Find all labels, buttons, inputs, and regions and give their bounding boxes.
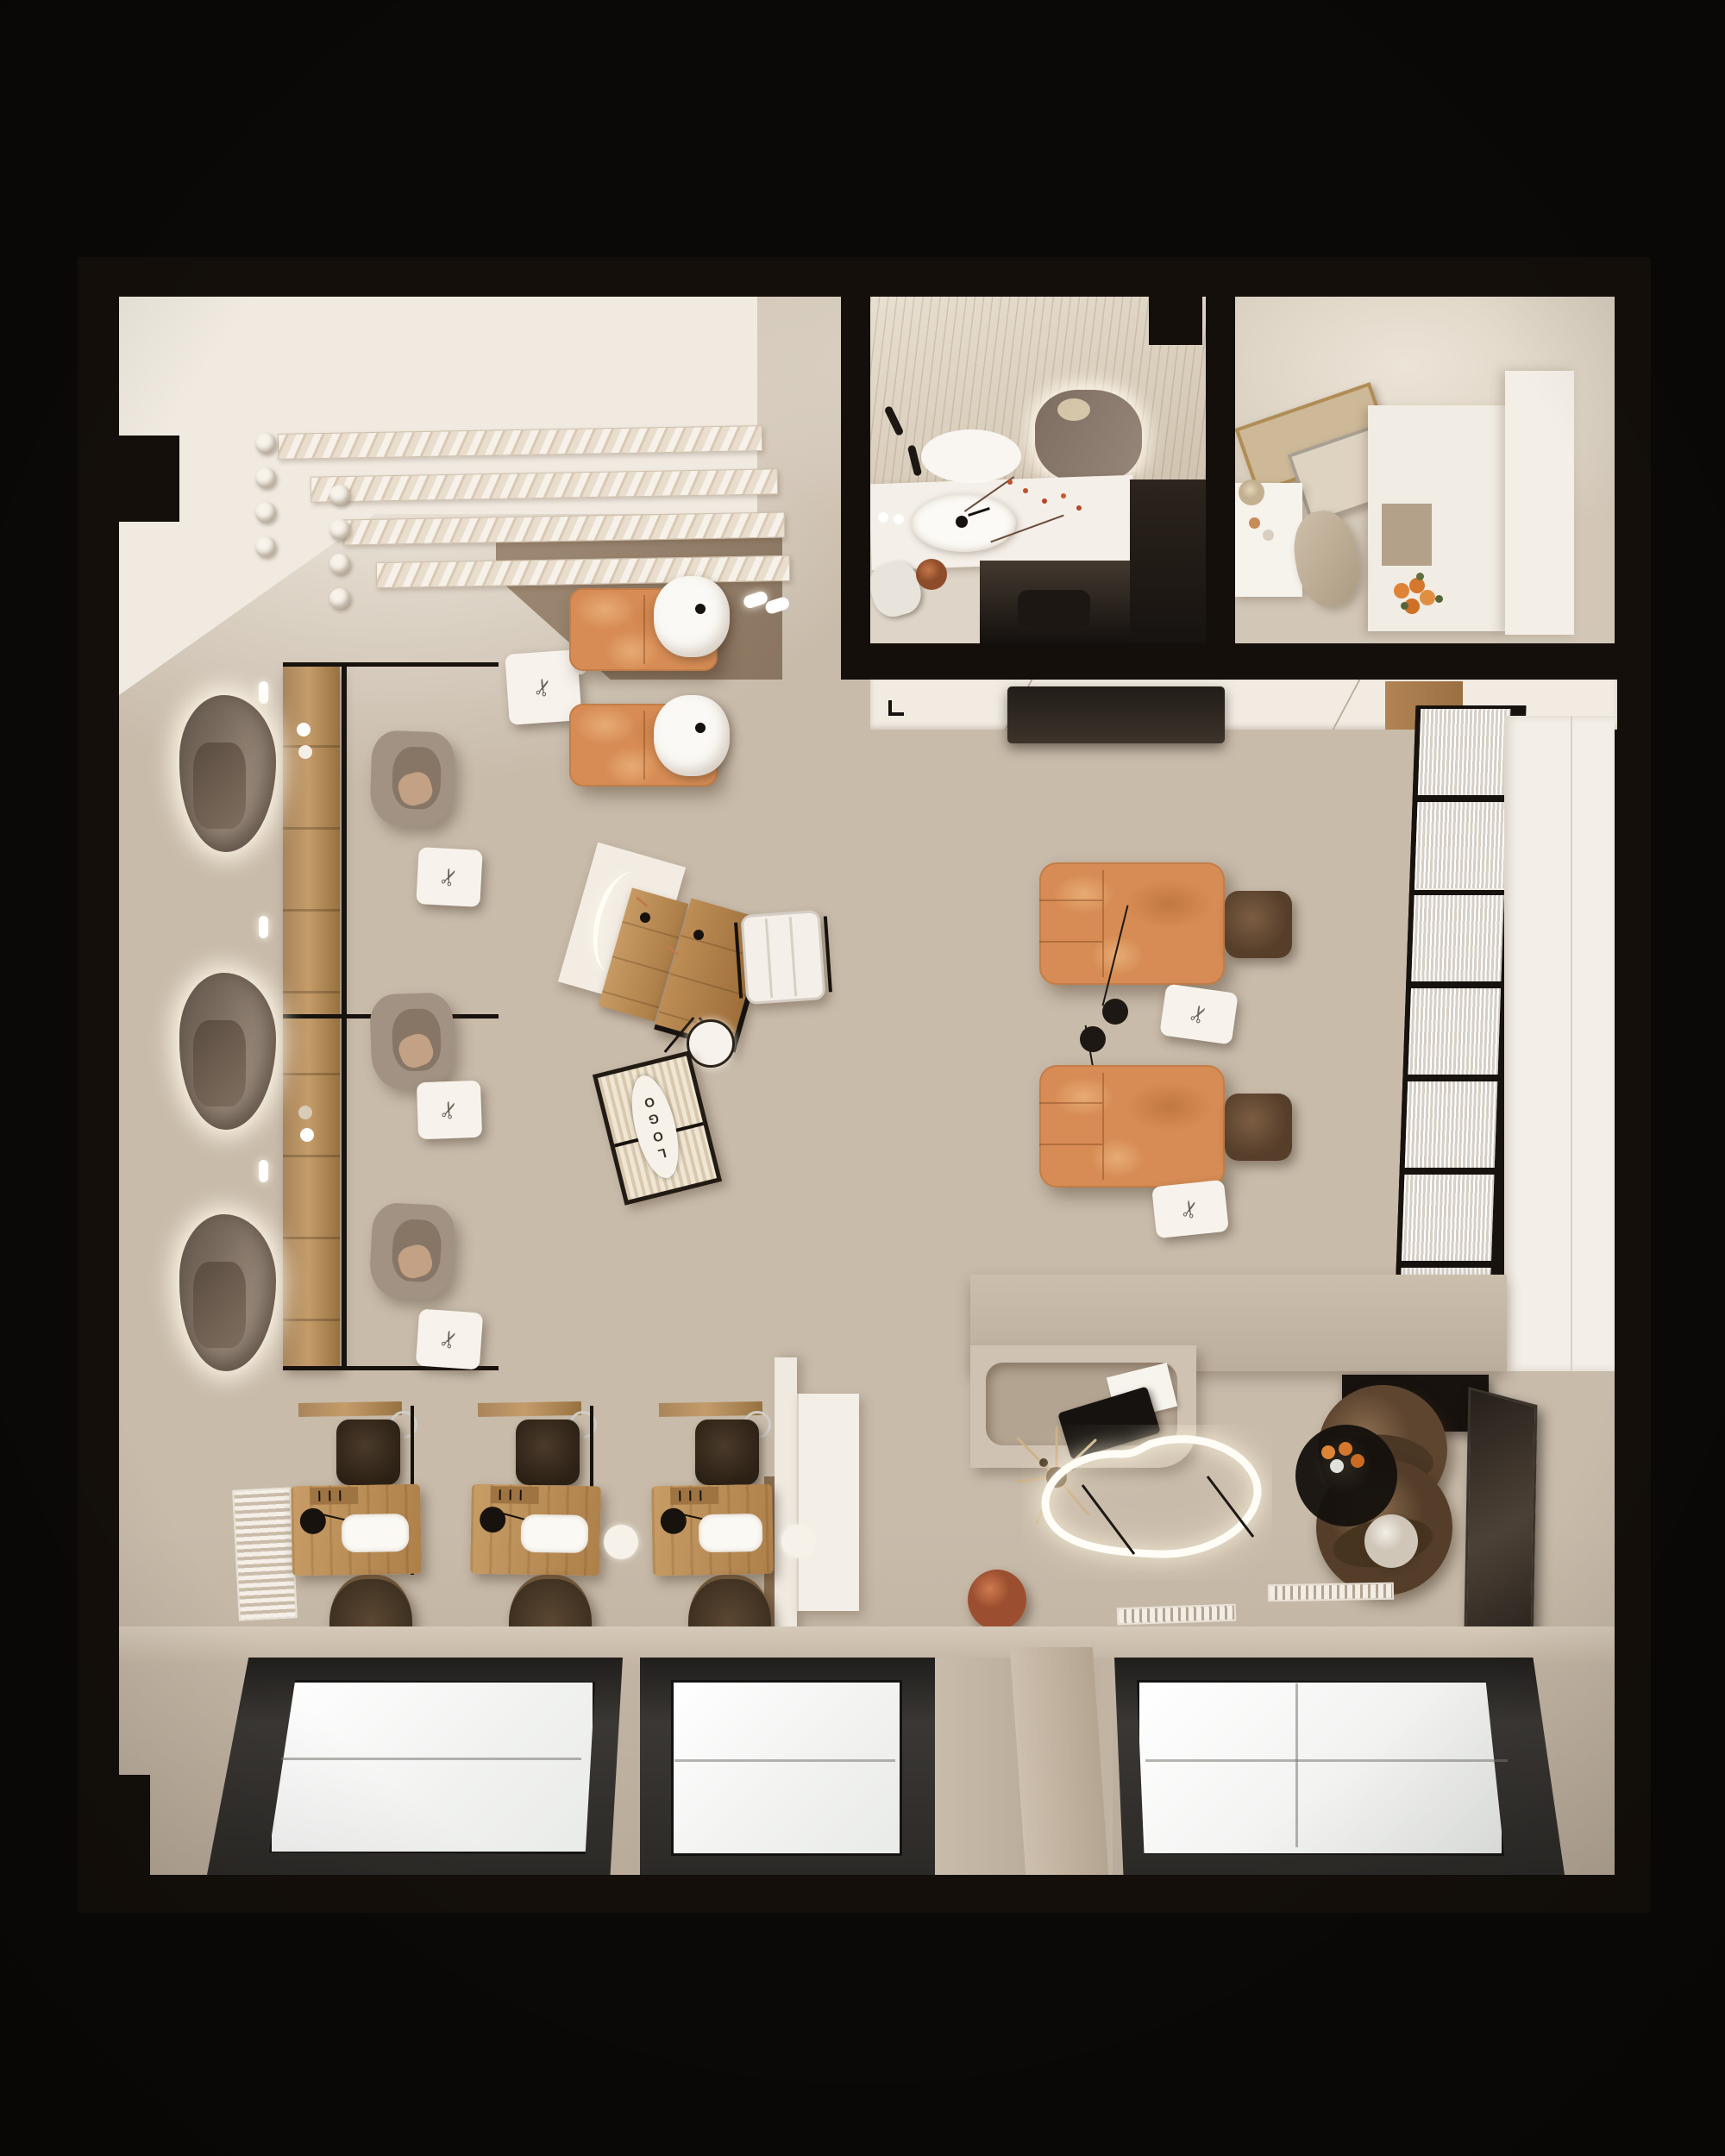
desk-knobs	[640, 912, 650, 923]
window-glass-1	[269, 1680, 595, 1854]
basin-faucet-1	[695, 604, 706, 614]
window-bay-2	[640, 1658, 935, 1875]
tools	[499, 1489, 501, 1500]
ceiling-black-panel-light	[1007, 686, 1225, 743]
wall-right	[1615, 257, 1651, 1913]
wall-bulb-6	[329, 519, 350, 540]
wall-sconce-1	[259, 681, 268, 704]
scissors-icon: ✂	[530, 675, 556, 699]
station3-stool	[695, 1420, 759, 1485]
wall-bulb-3	[255, 502, 276, 523]
entrance-ramp	[1010, 1647, 1108, 1875]
pedicure-recliner-1	[1039, 862, 1225, 985]
recliner-seam	[1039, 1102, 1102, 1104]
scissors-icon: ✂	[436, 1098, 462, 1123]
wall-sconce-2	[259, 916, 268, 938]
window-bay-3	[1114, 1658, 1565, 1875]
scissors-icon: ✂	[1177, 1197, 1204, 1220]
articulated-lamp-discs	[1102, 999, 1128, 1025]
pedicure-ottoman-1	[1225, 891, 1292, 958]
window-glass-2	[671, 1680, 902, 1856]
console-frame-top	[283, 662, 499, 667]
glass-mullion-h	[674, 1759, 895, 1762]
wall-bulb-2	[255, 467, 276, 488]
white-wall-volume-right	[1504, 716, 1615, 1371]
radiator-grille	[232, 1487, 298, 1620]
tool-tray	[670, 1487, 718, 1505]
glass-pane-6	[1402, 1175, 1494, 1261]
mirror-reflection	[193, 743, 247, 829]
mirror-reflection	[193, 1262, 247, 1348]
wall-column-left	[119, 436, 179, 522]
wall-bathroom-right	[1206, 257, 1235, 680]
floor-vent-grille-1	[1268, 1583, 1394, 1602]
station3-globe-light	[781, 1525, 814, 1557]
scissors-icon: ✂	[436, 1326, 464, 1352]
station2-stool	[516, 1420, 580, 1485]
bathroom-wc-niche	[1130, 479, 1206, 643]
station2-globe-light	[604, 1525, 638, 1559]
manicure-pad	[699, 1514, 763, 1552]
glass-pane-3	[1411, 895, 1503, 981]
berry-dots	[1007, 479, 1013, 485]
glass-pane-4	[1408, 988, 1501, 1075]
ball-cushion	[1364, 1514, 1418, 1568]
station1-stool	[336, 1420, 400, 1485]
oranges	[1394, 583, 1409, 599]
terracotta-pot	[916, 559, 947, 590]
styling-chair-2	[369, 992, 455, 1089]
wall-left	[78, 257, 119, 1913]
station1-wall-plank	[298, 1401, 402, 1417]
wall-bulb-1	[255, 433, 276, 454]
glass-pane-1	[1418, 709, 1510, 795]
staffroom-wall-niche	[1382, 504, 1432, 566]
table-mugs	[1249, 517, 1260, 529]
staffroom-tall-cabinet	[1505, 371, 1574, 635]
toilet-top-view	[1018, 590, 1090, 628]
leaning-floor-mirror	[1465, 1387, 1538, 1647]
manicure-pad	[342, 1514, 410, 1552]
tools	[679, 1491, 681, 1501]
manicure-pad	[521, 1514, 589, 1553]
basin-faucet-2	[695, 723, 706, 733]
chair-seam	[643, 595, 645, 665]
glass-mullion-h	[281, 1758, 581, 1760]
desk-lamp	[480, 1507, 506, 1533]
partition-cabinet	[797, 1394, 859, 1611]
tool-tray	[310, 1487, 358, 1505]
logo-sign: LOGO	[624, 1071, 687, 1183]
tools	[318, 1491, 320, 1501]
wall-rooms-bottom	[841, 643, 1651, 680]
fruit-bowl	[1390, 573, 1437, 619]
scissors-icon: ✂	[436, 864, 463, 890]
cabinet-seam	[1571, 716, 1572, 1371]
glass-pane-2	[1414, 802, 1507, 888]
ball-pouf	[968, 1570, 1026, 1630]
recliner-seam	[1039, 941, 1102, 943]
chair-seam	[643, 711, 645, 780]
shampoo-basin-2	[654, 695, 730, 776]
wall-bulb-4	[255, 536, 276, 557]
floor-lamp-disc	[687, 1019, 735, 1068]
recliner-seam	[1039, 899, 1102, 901]
glass-pane-5	[1405, 1081, 1497, 1168]
recliner-seam	[1102, 870, 1104, 978]
logo-text: LOGO	[641, 1091, 670, 1162]
desk-lamp	[661, 1508, 687, 1535]
window-glass-3	[1137, 1680, 1504, 1856]
dried-plant-vase	[1239, 479, 1264, 505]
leaves	[1416, 573, 1424, 580]
led-tube-lamp	[1022, 1425, 1272, 1580]
ceiling-mark-1	[888, 700, 904, 716]
reception-armchair	[740, 910, 825, 1005]
wall-bulb-7	[329, 554, 350, 574]
desk-lamp	[300, 1508, 327, 1535]
toiletry-bottles	[878, 512, 888, 523]
sink-faucet	[956, 516, 968, 528]
glass-mullion-v	[1295, 1683, 1298, 1847]
station3-desk	[651, 1484, 774, 1576]
product-bottles-mid	[298, 1106, 312, 1119]
station2-wall-plank	[478, 1401, 581, 1417]
mirror-reflection	[193, 1020, 247, 1106]
stylist-trolley-2: ✂	[417, 1081, 482, 1140]
scissors-icon: ✂	[1184, 1000, 1213, 1027]
styling-chair-1	[369, 730, 455, 827]
styling-chair-3	[368, 1202, 456, 1301]
wall-bulb-8	[329, 588, 350, 609]
stylist-trolley-1: ✂	[416, 847, 482, 907]
wall-bulb-5	[329, 485, 350, 505]
recliner-seam	[1102, 1073, 1104, 1181]
pedicure-ottoman-2	[1225, 1094, 1292, 1161]
sink-mirror-reflection	[921, 429, 1021, 483]
wall-column-bathroom	[1149, 297, 1202, 345]
wall-step-bottom-left	[78, 1775, 150, 1880]
salon-floorplan-render: ✂ ✂ ✂ ✂ LOGO	[0, 0, 1725, 2156]
tool-tray	[491, 1486, 539, 1504]
stylist-trolley-3: ✂	[416, 1308, 483, 1369]
station1-desk	[291, 1484, 422, 1576]
pedicure-trolley-2: ✂	[1151, 1180, 1229, 1238]
mirror-reflection-light	[1057, 398, 1090, 421]
shampoo-basin-1	[654, 576, 730, 657]
product-bottles-top	[297, 723, 310, 736]
table-oranges-candle	[1321, 1445, 1335, 1459]
bathroom-backlit-mirror	[1035, 390, 1142, 483]
pedicure-recliner-2	[1039, 1065, 1225, 1188]
wall-sconce-3	[259, 1160, 268, 1182]
cushion-seams	[764, 918, 772, 998]
pedicure-trolley-1: ✂	[1159, 983, 1239, 1044]
wall-bottom	[78, 1875, 1651, 1913]
wall-bathroom-left	[841, 257, 870, 680]
recliner-seam	[1039, 1144, 1102, 1145]
station2-desk	[470, 1484, 601, 1576]
window-bay-1	[207, 1658, 623, 1875]
glass-mullion-h	[1145, 1759, 1508, 1762]
